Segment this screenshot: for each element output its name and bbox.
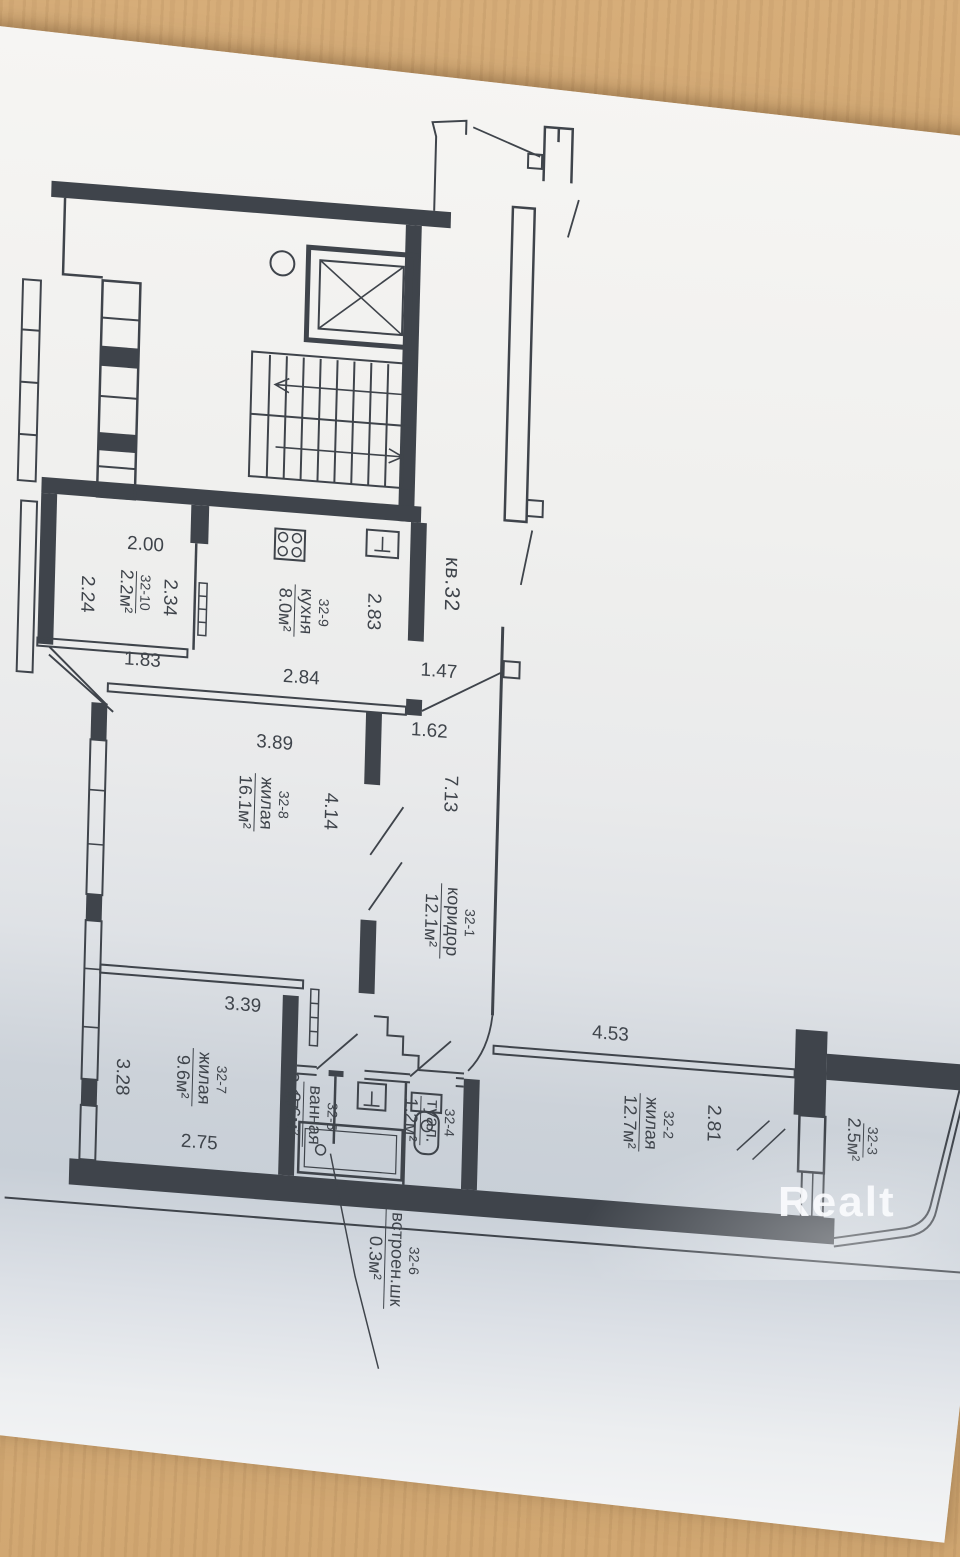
bath-partition-cap: [329, 1070, 344, 1077]
dimension-1-47: 1.47: [420, 660, 457, 683]
floorplan-drawing: кв.32 2.00 2.24 2.34 1.83 2.83 2.84 1.47…: [0, 25, 960, 1518]
west-window-1: [86, 739, 106, 895]
room328-east-wall-upper: [364, 712, 382, 786]
dimension-3-89: 3.89: [256, 732, 293, 755]
room-label-32-7: 32-7 жилая 9.6м²: [172, 1047, 229, 1110]
entry-door-leaf: [468, 1014, 492, 1073]
elevator-icon: [306, 247, 416, 348]
room328-south-wall: [100, 964, 303, 988]
dimension-2-34: 2.34: [158, 578, 179, 617]
room3210-door-leaf: [198, 583, 207, 636]
room328-door-leaves: [369, 805, 404, 913]
dimension-7-13: 7.13: [439, 774, 460, 813]
room-label-32-9: 32-9 кухня 8.0м²: [275, 583, 332, 639]
room-label-32-8: 32-8 жилая 16.1м²: [234, 772, 291, 835]
bath-door-leaf: [317, 1031, 358, 1072]
corridor-east-wall-upper: [505, 207, 535, 522]
room328-nw-diagonal-wall: [48, 647, 115, 712]
kitchen-east-wall-stub: [406, 699, 422, 716]
room-label-32-4: 32-4 туал. 1.2м²: [400, 1094, 457, 1147]
stair-window-pier-1: [100, 346, 138, 369]
room3210-south-wall: [37, 638, 187, 658]
stairwell-top-wall: [51, 181, 451, 228]
west-window-1-ticks: [88, 790, 105, 845]
balcony-pillar: [794, 1029, 828, 1117]
room3210-west-wall: [37, 493, 57, 645]
corridor-wall-notch-upper: [527, 500, 543, 517]
dimension-2-75: 2.75: [181, 1132, 218, 1155]
room-label-32-1: 32-1 коридор 12.1м²: [420, 882, 478, 961]
room328-east-wall-lower: [359, 920, 377, 995]
kitchen-east-wall: [408, 522, 427, 642]
dimension-2-84: 2.84: [283, 667, 320, 690]
toilet-door-leaf: [410, 1038, 451, 1079]
balcony-door-block: [798, 1115, 825, 1173]
wall-break-line-upper: [568, 199, 579, 238]
south-exterior-wall: [69, 1158, 835, 1244]
west-window-3: [79, 1105, 96, 1160]
west-wall-pier-3: [81, 1079, 98, 1106]
wall-hook-top: [430, 118, 466, 213]
dimension-2-00: 2.00: [127, 534, 164, 557]
dimension-3-28: 3.28: [111, 1057, 132, 1096]
balcony-door-leaves: [737, 1118, 786, 1162]
dimension-4-14: 4.14: [319, 792, 340, 831]
washbasin-icon: [358, 1082, 387, 1110]
wall-break-line: [521, 530, 532, 586]
room327-door-leaf: [309, 989, 318, 1046]
dimension-3-39: 3.39: [224, 994, 261, 1017]
floorplan-paper-sheet: кв.32 2.00 2.24 2.34 1.83 2.83 2.84 1.47…: [0, 25, 960, 1543]
room-label-32-10: 32-10 2.2м²: [116, 569, 153, 615]
room-label-32-2: 32-2 жилая 12.7м²: [619, 1092, 676, 1155]
kitchen-south-wall: [108, 683, 406, 714]
stove-icon: [275, 528, 306, 560]
garbage-chute-icon: [270, 250, 294, 276]
realt-watermark: Realt: [778, 1180, 896, 1227]
room-label-32-6: 32-6 встроен.шк 0.3м²: [364, 1207, 422, 1312]
sink-icon: [366, 530, 398, 559]
dimension-4-53: 4.53: [592, 1023, 629, 1046]
west-window-2-ticks: [83, 968, 100, 1027]
dimension-2-24: 2.24: [76, 575, 97, 614]
west-wall-pier-2: [86, 894, 103, 921]
shaft-top-right: [544, 127, 573, 183]
stairs-icon: [249, 352, 415, 489]
west-wall-pier-1: [91, 702, 108, 740]
west-window-2: [81, 920, 101, 1080]
dimension-2-83: 2.83: [362, 592, 383, 631]
room3210-kitchen-pier: [190, 505, 209, 545]
dimension-2-81: 2.81: [702, 1104, 723, 1143]
dimension-1-62: 1.62: [411, 720, 448, 743]
room3210-east-wall: [193, 543, 196, 649]
corridor-step-wall: [373, 1016, 466, 1073]
balcony-top-wall: [826, 1054, 960, 1092]
stair-window-pier-2: [98, 432, 136, 453]
corridor-east-wall-lower: [492, 627, 502, 1016]
toilet-east-wall: [461, 1079, 480, 1191]
floorplan-walls: [0, 25, 960, 1518]
stairs-arrow-up: [275, 377, 403, 401]
leader-line-top: [473, 127, 541, 156]
room322-north-wall: [493, 1046, 794, 1078]
thick-walls: [23, 181, 960, 1255]
dimension-1-83: 1.83: [124, 649, 161, 672]
stairs-arrow-down: [275, 440, 403, 464]
neighbour-wall-upper: [18, 279, 41, 481]
photo-scene: кв.32 2.00 2.24 2.34 1.83 2.83 2.84 1.47…: [0, 0, 960, 1280]
stairwell-west-connector: [63, 198, 105, 277]
apartment-number-label: кв.32: [439, 556, 463, 613]
room-label-32-5: 32-5 ванная 2.6м²: [283, 1080, 340, 1150]
room-label-32-3: 32-3 2.5м²: [843, 1117, 880, 1163]
neighbour-wall-lower: [17, 500, 37, 672]
corridor-wall-notch-lower: [503, 661, 519, 678]
